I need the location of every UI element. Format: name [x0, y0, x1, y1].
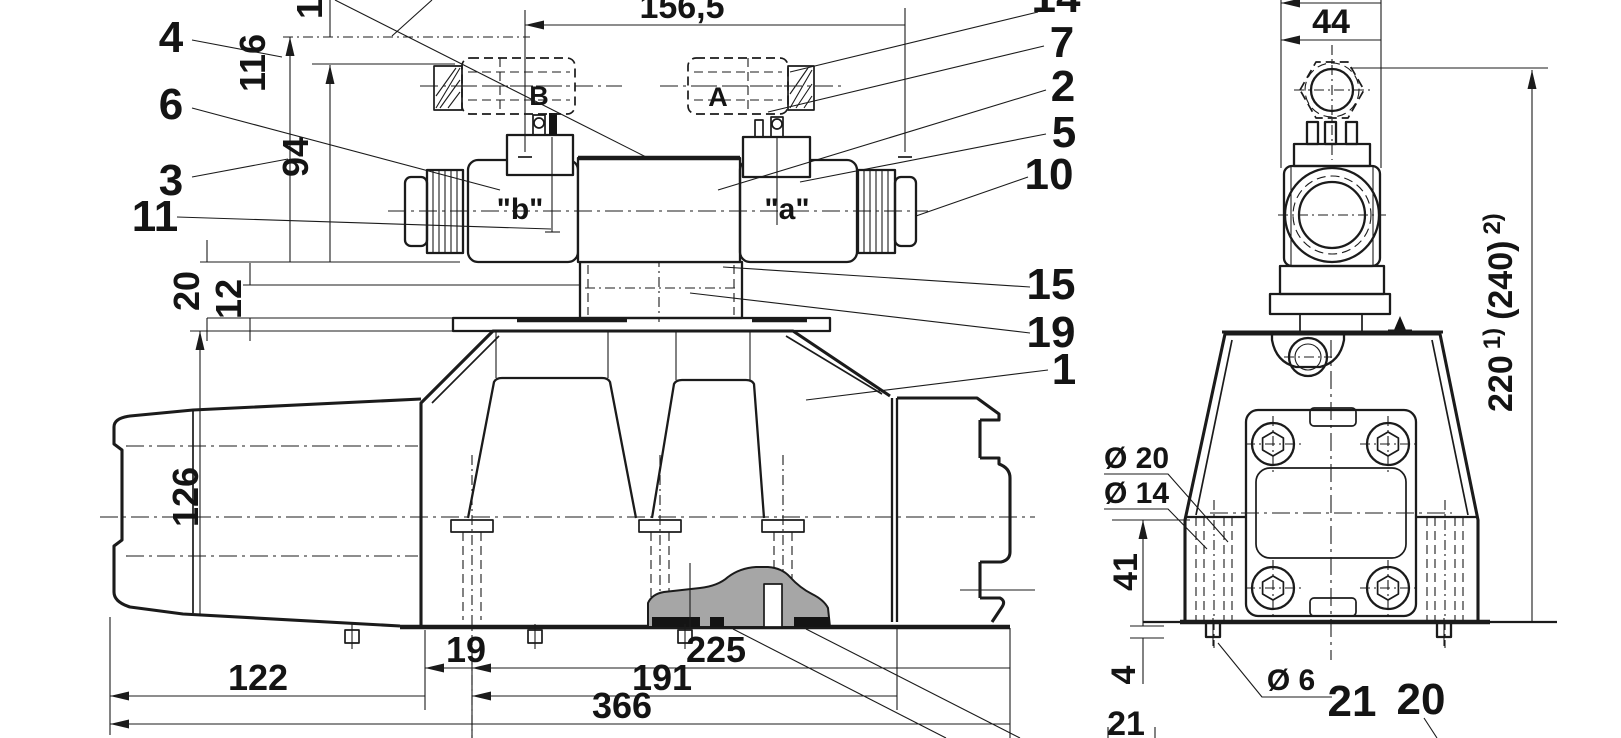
pilot-valve-body [578, 158, 740, 262]
callout-20: 20 [1397, 675, 1446, 724]
dim-240: (240) [1482, 241, 1520, 320]
callout-2: 2 [1051, 62, 1075, 111]
dim-220-240: 2201)(240)2) [1479, 213, 1520, 412]
solenoid-a-label: "a" [764, 193, 809, 226]
dim-dia6: Ø 6 [1267, 664, 1315, 697]
dim-156-5: 156,5 [639, 0, 724, 26]
dim-116: 116 [232, 34, 273, 92]
dim-20: 20 [166, 271, 207, 311]
dim-dia20: Ø 20 [1104, 442, 1169, 475]
dim-220: 220 [1482, 355, 1520, 412]
intermediate-plate [580, 262, 742, 318]
dim-225: 225 [686, 629, 746, 670]
main-housing [400, 318, 1010, 738]
callout-7: 7 [1050, 18, 1074, 67]
solenoid-b-connector [507, 135, 573, 175]
dim-366: 366 [592, 685, 652, 726]
dim-44: 44 [1312, 3, 1350, 41]
left-cover-block [114, 399, 421, 626]
dim-21-offset: 21 [1107, 705, 1145, 738]
callout-21: 21 [1328, 677, 1377, 726]
port-label-a: A [708, 82, 728, 112]
callout-1-top: 1 [289, 0, 330, 19]
side-callouts: 21 20 [1328, 675, 1446, 738]
drawing-canvas: B A "b" "a" 156,5 116 94 [0, 0, 1621, 738]
right-end-block [892, 398, 1035, 622]
dim-220-footnote: 1) [1479, 328, 1506, 349]
dim-122: 122 [228, 657, 288, 698]
callout-4: 4 [159, 13, 184, 62]
valve-dimension-drawing: B A "b" "a" 156,5 116 94 [0, 0, 1621, 738]
dim-12: 12 [208, 279, 249, 319]
callout-6: 6 [159, 80, 183, 129]
dim-19: 19 [446, 629, 486, 670]
callout-10: 10 [1025, 150, 1074, 199]
plug-assembly-A [660, 58, 845, 114]
side-dimensions: 44 2201)(240)2) Ø 20 Ø 14 41 4 21 Ø 6 [1104, 3, 1548, 738]
side-view: 44 2201)(240)2) Ø 20 Ø 14 41 4 21 Ø 6 [1104, 0, 1557, 738]
callout-1: 1 [1052, 345, 1076, 394]
callout-15: 15 [1027, 260, 1076, 309]
side-solenoid [1270, 0, 1412, 332]
dim-4: 4 [1105, 665, 1143, 684]
front-view: B A "b" "a" 156,5 116 94 [100, 0, 1081, 738]
dim-dia14: Ø 14 [1104, 477, 1169, 510]
dim-94: 94 [275, 137, 316, 177]
plug-assembly-B [420, 58, 622, 114]
dim-126: 126 [165, 467, 206, 527]
dim-240-footnote: 2) [1479, 213, 1506, 234]
dim-41: 41 [1107, 553, 1145, 591]
callout-11: 11 [132, 192, 179, 241]
solenoid-b-label: "b" [497, 193, 544, 226]
pilot-valve-assembly: B A "b" "a" [388, 58, 928, 322]
